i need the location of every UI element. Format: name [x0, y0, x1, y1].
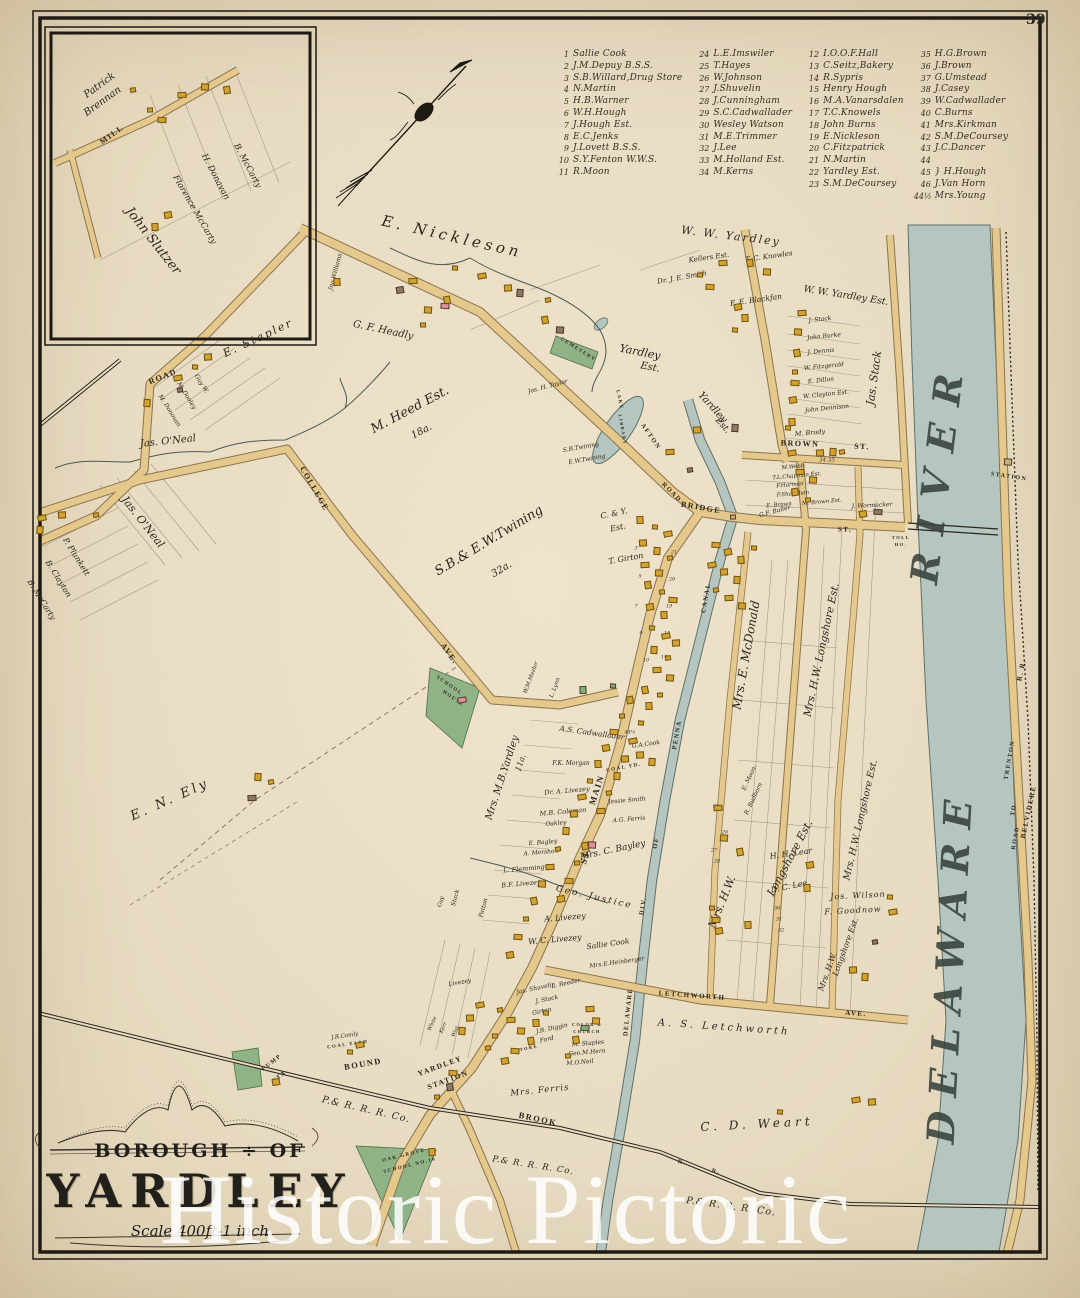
- legend-entry-name: J.M.Depuy B.S.S.: [573, 61, 653, 73]
- legend-entry-name: H.B.Warner: [573, 96, 629, 108]
- legend-entry-name: J.Hough Est.: [573, 120, 632, 132]
- building: [543, 1010, 549, 1015]
- building: [732, 327, 738, 332]
- building: [530, 896, 538, 905]
- building: [532, 1019, 539, 1027]
- building: [638, 720, 644, 725]
- legend-entry-name: T.Hayes: [713, 61, 750, 73]
- legend-entry-number: 46: [914, 179, 935, 191]
- legend-entry-number: 9: [552, 143, 573, 155]
- building: [458, 1027, 466, 1035]
- building: [733, 576, 741, 584]
- legend-entry-name: J.Casey: [935, 84, 969, 96]
- building: [163, 211, 172, 219]
- building: [665, 655, 672, 661]
- legend-entry: 35H.G.Brown: [914, 49, 1008, 61]
- legend-entry-name: C.Burns: [935, 108, 973, 120]
- legend-entry: 16M.A.Vanarsdalen: [802, 96, 904, 108]
- building: [523, 916, 529, 921]
- building: [271, 1078, 280, 1086]
- building: [687, 467, 694, 473]
- building: [668, 597, 677, 604]
- building: [763, 268, 771, 276]
- legend-entry-name: M.Kerns: [713, 167, 753, 179]
- legend-entry-number: 24: [692, 49, 713, 61]
- legend-entry: 24L.E.Imswiler: [692, 49, 792, 61]
- legend-entry-name: I.O.O.F.Hall: [823, 49, 878, 61]
- building: [143, 399, 151, 407]
- building: [657, 692, 663, 697]
- legend-entry-name: H.G.Brown: [935, 49, 987, 61]
- building: [724, 595, 733, 601]
- legend-entry-number: 33: [692, 155, 713, 167]
- building: [746, 258, 754, 267]
- building: [731, 424, 739, 432]
- building: [581, 841, 589, 850]
- building: [714, 927, 723, 935]
- legend-entry-name: G.Umstead: [935, 73, 987, 85]
- legend-entry-number: 20: [802, 143, 823, 155]
- building: [157, 117, 166, 124]
- legend-entry-name: Wesley Watson: [713, 120, 784, 132]
- building: [648, 758, 656, 766]
- building: [541, 315, 549, 324]
- legend-entry: 6W.H.Hough: [552, 108, 682, 120]
- building: [718, 260, 727, 266]
- legend-entry: 15Henry Hough: [802, 84, 904, 96]
- legend-entry-name: W.Johnson: [713, 73, 762, 85]
- building: [730, 514, 736, 519]
- building: [192, 364, 198, 369]
- legend-entry: 41Mrs.Kirkman: [914, 120, 1008, 132]
- legend-entry-name: S.M.DeCoursey: [935, 132, 1008, 144]
- legend-entry: 7J.Hough Est.: [552, 120, 682, 132]
- building: [665, 449, 674, 455]
- legend-entry: 44: [914, 155, 1008, 167]
- legend-entry-name: S.M.DeCoursey: [823, 179, 896, 191]
- building: [777, 1109, 783, 1114]
- legend-entry-name: S.C.Cadwallader: [713, 108, 792, 120]
- building: [720, 568, 728, 575]
- legend-entry: 17T.C.Knowels: [802, 108, 904, 120]
- legend-entry-name: Mrs.Young: [935, 191, 986, 203]
- building: [517, 1027, 525, 1035]
- legend-entry-number: 32: [692, 143, 713, 155]
- building: [1004, 458, 1012, 466]
- building: [587, 778, 593, 783]
- building: [788, 396, 797, 404]
- legend-entry: 33M.Holland Est.: [692, 155, 792, 167]
- legend-entry: 19E.Nickleson: [802, 132, 904, 144]
- legend-entry-name: C.Seitz,Bakery: [823, 61, 893, 73]
- legend-entry-number: 23: [802, 179, 823, 191]
- legend-entry-number: 38: [914, 84, 935, 96]
- legend-entry-name: R.Moon: [573, 167, 610, 179]
- building: [795, 469, 804, 475]
- building: [506, 1017, 515, 1023]
- legend-entry-number: 15: [802, 84, 823, 96]
- building: [574, 860, 580, 865]
- legend-entry-name: Yardley Est.: [823, 167, 880, 179]
- legend-entry: 42S.M.DeCoursey: [914, 132, 1008, 144]
- building: [446, 1082, 454, 1091]
- legend-entry-number: 39: [914, 96, 935, 108]
- legend-entry-number: 6: [552, 108, 573, 120]
- farm-lane: [160, 666, 458, 880]
- canal: [600, 400, 733, 1258]
- building: [713, 805, 722, 811]
- legend-entry-name: E.Nickleson: [823, 132, 880, 144]
- legend-entry-name: S.Y.Fenton W.W.S.: [573, 155, 657, 167]
- building: [803, 884, 810, 892]
- building: [247, 795, 256, 801]
- legend-entry-name: John Burns: [823, 120, 876, 132]
- building: [872, 939, 879, 945]
- legend-entry-name: M.Holland Est.: [713, 155, 784, 167]
- building: [640, 562, 649, 568]
- building: [650, 646, 658, 654]
- building: [737, 556, 744, 564]
- building: [505, 951, 514, 959]
- legend-entry-number: 16: [802, 96, 823, 108]
- building: [723, 548, 732, 556]
- legend-entry: 9J.Lovett B.S.S.: [552, 143, 682, 155]
- building: [395, 286, 404, 294]
- building: [887, 894, 893, 899]
- inset-frame: [45, 27, 316, 345]
- building: [626, 695, 634, 704]
- legend-entry-name: Mrs.Kirkman: [935, 120, 997, 132]
- legend-entry: 46J.Van Horn: [914, 179, 1008, 191]
- building: [693, 426, 701, 433]
- legend-entry-number: 17: [802, 108, 823, 120]
- compass-icon: [336, 60, 472, 206]
- map-sheet: 39 1Sallie Cook2J.M.Depuy B.S.S.3S.B.Wil…: [0, 0, 1080, 1298]
- building: [805, 861, 814, 869]
- legend-entry-number: 30: [692, 120, 713, 132]
- building: [711, 917, 720, 924]
- legend-entry: 27J.Shuvelin: [692, 84, 792, 96]
- building: [545, 297, 552, 303]
- building: [500, 1057, 509, 1065]
- legend-entry: 12I.O.O.F.Hall: [802, 49, 904, 61]
- building: [839, 449, 846, 455]
- building: [424, 306, 432, 314]
- building: [466, 1014, 474, 1021]
- building: [652, 667, 661, 673]
- building: [492, 1033, 498, 1038]
- legend-entry-name: M.A.Vanarsdalen: [823, 96, 904, 108]
- building: [621, 755, 629, 762]
- legend-entry-number: 25: [692, 61, 713, 73]
- building: [636, 751, 644, 758]
- building: [448, 1070, 457, 1077]
- legend-entry: 3S.B.Willard,Drug Store: [552, 73, 682, 85]
- legend-entry: 37G.Umstead: [914, 73, 1008, 85]
- legend-entry-name: J.Van Horn: [935, 179, 986, 191]
- legend-entry-name: T.C.Knowels: [823, 108, 881, 120]
- building: [791, 487, 799, 496]
- legend-entry: 43J.C.Dancer: [914, 143, 1008, 155]
- legend-entry-number: 43: [914, 143, 935, 155]
- building: [130, 87, 137, 93]
- railroads: [38, 232, 1040, 1207]
- building: [644, 580, 652, 589]
- building: [504, 284, 512, 291]
- building: [609, 729, 618, 736]
- legend-entry-number: 40: [914, 108, 935, 120]
- building: [610, 683, 616, 688]
- building: [720, 834, 728, 842]
- legend-entry: 21N.Martin: [802, 155, 904, 167]
- legend-column: 1Sallie Cook2J.M.Depuy B.S.S.3S.B.Willar…: [552, 49, 682, 202]
- building: [333, 278, 340, 286]
- building: [562, 827, 570, 835]
- legend-entry: 36J.Brown: [914, 61, 1008, 73]
- building: [858, 510, 867, 518]
- legend-entry-number: 4: [552, 84, 573, 96]
- legend-entry-number: 11: [552, 167, 573, 179]
- legend-entry: 11R.Moon: [552, 167, 682, 179]
- legend-entry-number: 36: [914, 61, 935, 73]
- building: [741, 314, 748, 322]
- building: [485, 1045, 492, 1051]
- building: [711, 542, 720, 549]
- building: [510, 1048, 519, 1055]
- legend-entry-name: S.B.Willard,Drug Store: [573, 73, 682, 85]
- building: [452, 265, 458, 270]
- building: [556, 895, 565, 903]
- legend-entry: 23S.M.DeCoursey: [802, 179, 904, 191]
- legend-entry: 45} H.Hough: [914, 167, 1008, 179]
- building: [538, 880, 546, 888]
- legend-entry-number: 45: [914, 167, 935, 179]
- legend-entry-number: 22: [802, 167, 823, 179]
- legend-entry: 20C.Fitzpatrick: [802, 143, 904, 155]
- legend-entry-number: 1: [552, 49, 573, 61]
- building: [572, 1035, 580, 1044]
- building: [596, 808, 605, 814]
- legend-entry: 44½Mrs.Young: [914, 191, 1008, 203]
- building: [666, 674, 674, 682]
- building: [792, 369, 798, 374]
- building: [347, 1049, 353, 1054]
- building: [556, 326, 564, 334]
- legend-entry-number: 27: [692, 84, 713, 96]
- legend-entry-name: J.C.Dancer: [935, 143, 985, 155]
- legend-entry-number: 12: [802, 49, 823, 61]
- legend-entry: 28J.Cunningham: [692, 96, 792, 108]
- building: [653, 547, 661, 555]
- legend-entry: 18John Burns: [802, 120, 904, 132]
- building: [794, 328, 802, 336]
- building: [868, 1098, 876, 1105]
- legend-entry: 1Sallie Cook: [552, 49, 682, 61]
- building: [570, 810, 578, 817]
- legend-entry-name: M.E.Trimmer: [713, 132, 777, 144]
- legend-entry-number: 14: [802, 73, 823, 85]
- building: [588, 841, 596, 849]
- building: [497, 1007, 504, 1013]
- building: [697, 272, 703, 277]
- building: [639, 539, 647, 546]
- page-number: 39: [1026, 12, 1045, 28]
- building: [36, 526, 44, 534]
- owner-index: 1Sallie Cook2J.M.Depuy B.S.S.3S.B.Willar…: [552, 49, 1008, 202]
- legend-entry-name: W.Cadwallader: [935, 96, 1006, 108]
- legend-entry-name: W.H.Hough: [573, 108, 627, 120]
- title-block: BOROUGH ÷ OF YARDLEY Scale 400ft-1 inch: [40, 1140, 360, 1240]
- legend-entry: 8E.C.Jenks: [552, 132, 682, 144]
- legend-entry-name: N.Martin: [573, 84, 616, 96]
- building: [513, 934, 522, 941]
- legend-entry: 10S.Y.Fenton W.W.S.: [552, 155, 682, 167]
- building: [516, 289, 524, 297]
- building: [738, 602, 746, 610]
- legend-entry-number: 7: [552, 120, 573, 132]
- building: [659, 589, 665, 594]
- building: [93, 512, 100, 518]
- building: [555, 846, 562, 852]
- building: [793, 348, 801, 357]
- building: [527, 1036, 535, 1045]
- legend-entry-name: N.Martin: [823, 155, 866, 167]
- building: [829, 448, 837, 456]
- building: [733, 303, 742, 311]
- building: [652, 524, 658, 529]
- legend-entry: 29S.C.Cadwallader: [692, 108, 792, 120]
- building: [434, 1094, 440, 1099]
- legend-entry: 34M.Kerns: [692, 167, 792, 179]
- building: [201, 83, 209, 91]
- legend-entry-number: 5: [552, 96, 573, 108]
- legend-column: 35H.G.Brown36J.Brown37G.Umstead38J.Casey…: [914, 49, 1008, 202]
- legend-entry: 14R.Sypris: [802, 73, 904, 85]
- legend-entry: 2J.M.Depuy B.S.S.: [552, 61, 682, 73]
- legend-entry: 40C.Burns: [914, 108, 1008, 120]
- title-kicker: BOROUGH ÷ OF: [40, 1140, 360, 1162]
- building: [709, 905, 715, 910]
- legend-entry-number: 41: [914, 120, 935, 132]
- legend-entry-name: J.Lovett B.S.S.: [573, 143, 641, 155]
- building: [744, 921, 751, 929]
- building: [408, 278, 417, 284]
- building: [713, 587, 720, 593]
- building: [785, 425, 791, 430]
- legend-entry-number: 3: [552, 73, 573, 85]
- building: [797, 310, 806, 316]
- legend-entry-number: 2: [552, 61, 573, 73]
- legend-entry-number: 28: [692, 96, 713, 108]
- legend-entry-number: 18: [802, 120, 823, 132]
- delaware-river: [908, 225, 1026, 1258]
- building: [613, 772, 621, 780]
- legend-entry-name: Henry Hough: [823, 84, 887, 96]
- building: [545, 864, 554, 870]
- legend-entry: 38J.Casey: [914, 84, 1008, 96]
- building: [601, 744, 610, 752]
- legend-entry-name: L.E.Imswiler: [713, 49, 773, 61]
- building: [790, 380, 799, 387]
- building: [254, 773, 262, 781]
- building: [849, 966, 857, 973]
- building: [594, 760, 601, 768]
- legend-entry-number: 34: [692, 167, 713, 179]
- legend-entry-number: 42: [914, 132, 935, 144]
- building: [58, 511, 66, 518]
- legend-entry: 22Yardley Est.: [802, 167, 904, 179]
- building: [816, 449, 824, 456]
- building: [861, 973, 869, 981]
- legend-entry-name: C.Fitzpatrick: [823, 143, 885, 155]
- legend-entry: 13C.Seitz,Bakery: [802, 61, 904, 73]
- building: [636, 516, 643, 524]
- building: [268, 779, 275, 785]
- legend-entry-name: J.Brown: [935, 61, 972, 73]
- legend-entry-number: 21: [802, 155, 823, 167]
- legend-entry-number: 19: [802, 132, 823, 144]
- legend-entry-number: 44: [914, 155, 935, 167]
- legend-entry-name: J.Shuvelin: [713, 84, 761, 96]
- building: [592, 1017, 600, 1025]
- road-casings: [36, 70, 1032, 1258]
- building: [736, 847, 744, 856]
- building: [805, 497, 811, 502]
- legend-entry-number: 44½: [914, 191, 935, 203]
- legend-entry-number: 37: [914, 73, 935, 85]
- building: [204, 353, 212, 360]
- building: [641, 685, 649, 694]
- building: [660, 611, 667, 619]
- building: [645, 603, 654, 611]
- building: [873, 509, 882, 516]
- building: [705, 284, 714, 291]
- legend-entry-name: } H.Hough: [935, 167, 987, 179]
- legend-entry: 4N.Martin: [552, 84, 682, 96]
- building: [440, 303, 449, 310]
- building: [579, 686, 586, 694]
- legend-entry-name: Sallie Cook: [573, 49, 627, 61]
- legend-entry-name: E.C.Jenks: [573, 132, 618, 144]
- legend-entry-number: 13: [802, 61, 823, 73]
- building: [672, 639, 680, 646]
- building: [177, 92, 186, 98]
- streams: [55, 248, 608, 903]
- building: [564, 878, 573, 885]
- legend-entry-name: R.Sypris: [823, 73, 863, 85]
- legend-entry-name: J.Lee: [713, 143, 736, 155]
- legend-entry: 30Wesley Watson: [692, 120, 792, 132]
- building: [420, 322, 426, 327]
- building: [580, 1025, 589, 1032]
- map-scale: Scale 400ft-1 inch: [40, 1222, 360, 1240]
- roads: [36, 70, 1032, 1258]
- legend-entry: 25T.Hayes: [692, 61, 792, 73]
- building: [649, 625, 655, 630]
- legend-entry-number: 26: [692, 73, 713, 85]
- legend-entry: 5H.B.Warner: [552, 96, 682, 108]
- legend-entry: 26W.Johnson: [692, 73, 792, 85]
- building: [223, 85, 231, 94]
- building: [619, 713, 625, 718]
- legend-entry-number: 10: [552, 155, 573, 167]
- building: [585, 1006, 594, 1012]
- legend-entry: 39W.Cadwallader: [914, 96, 1008, 108]
- building: [606, 790, 613, 796]
- map-title: YARDLEY: [40, 1164, 360, 1218]
- legend-column: 24L.E.Imswiler25T.Hayes26W.Johnson27J.Sh…: [692, 49, 792, 202]
- legend-entry-number: 31: [692, 132, 713, 144]
